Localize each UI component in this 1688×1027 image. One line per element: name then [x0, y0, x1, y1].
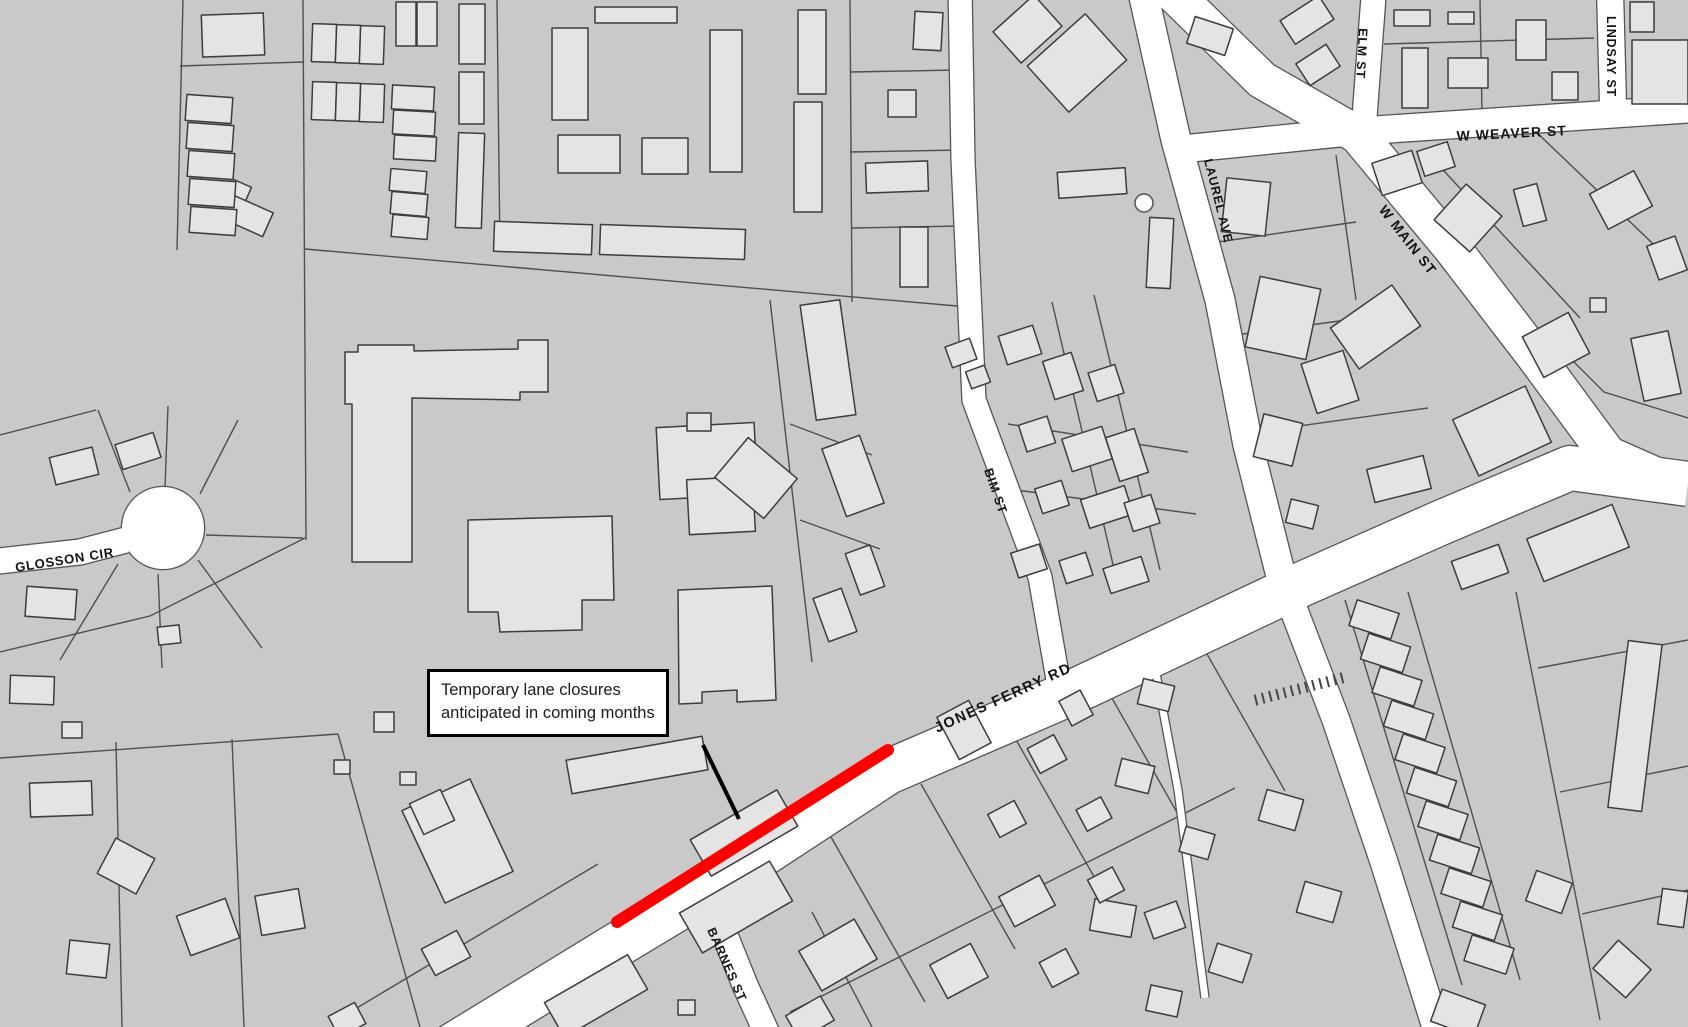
building — [1513, 184, 1546, 227]
townhouse-unit — [1441, 868, 1491, 907]
hatch-tick — [1262, 693, 1265, 704]
building — [800, 300, 856, 420]
building-large-notched — [468, 516, 614, 632]
building — [374, 712, 394, 732]
building — [1451, 544, 1508, 589]
building — [66, 940, 109, 978]
building — [900, 227, 928, 287]
map-canvas: GLOSSON CIR JONES FERRY RD BARNES ST BIM… — [0, 0, 1688, 1027]
hatch-tick — [1298, 684, 1301, 695]
building — [1035, 480, 1070, 513]
map-stage: GLOSSON CIR JONES FERRY RD BARNES ST BIM… — [0, 0, 1688, 1027]
building — [1296, 881, 1341, 922]
callout-leader-line — [703, 745, 739, 819]
townhouse-unit — [335, 83, 360, 122]
townhouse-unit — [1464, 935, 1514, 974]
building — [494, 221, 593, 254]
parcel-line — [1384, 38, 1594, 44]
building-large-notched — [678, 586, 776, 704]
parcel-line — [1480, 0, 1482, 112]
townhouse-unit — [417, 2, 437, 46]
building — [255, 888, 305, 935]
townhouse-unit — [393, 135, 436, 161]
building — [25, 586, 77, 619]
townhouse-unit — [1349, 600, 1399, 639]
building — [455, 133, 484, 229]
building — [1402, 48, 1428, 108]
building — [642, 138, 688, 174]
building — [566, 736, 708, 793]
townhouse-unit — [396, 2, 416, 46]
building — [595, 7, 677, 23]
annotation-line-2: anticipated in coming months — [441, 702, 655, 725]
building — [1208, 943, 1252, 983]
building — [1137, 679, 1174, 712]
building — [1590, 171, 1653, 230]
building — [459, 4, 485, 64]
building — [678, 1000, 695, 1015]
building — [1027, 735, 1067, 774]
building — [822, 435, 884, 516]
parcel-line — [800, 520, 880, 549]
building — [1258, 789, 1303, 830]
townhouse-unit — [188, 178, 236, 207]
building — [1286, 499, 1319, 529]
building — [1394, 10, 1430, 26]
building — [49, 447, 98, 485]
annotation-line-1: Temporary lane closures — [441, 679, 655, 702]
building — [998, 325, 1042, 365]
building — [1608, 641, 1662, 812]
building — [1632, 40, 1688, 104]
townhouse-unit — [1360, 633, 1410, 672]
townhouse-unit — [1418, 801, 1468, 840]
parcel-line — [1538, 640, 1688, 668]
townhouse-unit — [1383, 700, 1433, 739]
townhouse-unit — [185, 94, 233, 123]
building — [1448, 58, 1488, 88]
townhouse-unit — [1429, 834, 1479, 873]
building — [794, 102, 822, 212]
hatch-tick — [1276, 689, 1279, 700]
building — [930, 943, 988, 998]
parcel-line — [232, 739, 244, 1027]
parcel-line — [200, 420, 238, 494]
building — [1088, 867, 1125, 903]
building — [1552, 72, 1578, 100]
building — [1658, 888, 1688, 927]
building — [988, 800, 1027, 837]
building — [1526, 870, 1573, 913]
building — [1296, 44, 1340, 85]
hatch-tick — [1283, 687, 1286, 698]
building — [10, 675, 55, 705]
building — [421, 930, 470, 975]
townhouse-unit — [311, 82, 336, 121]
building — [1144, 901, 1186, 939]
parcel-line — [303, 0, 306, 540]
townhouse-unit — [391, 85, 434, 111]
parcel-line — [206, 535, 303, 538]
building — [201, 13, 264, 57]
building — [845, 545, 884, 595]
small-circle-feature — [1135, 194, 1153, 212]
townhouse-unit — [1406, 767, 1456, 806]
townhouse-unit — [359, 84, 384, 123]
street-label-lindsay-st: LINDSAY ST — [1604, 16, 1618, 97]
building — [913, 11, 943, 50]
building — [687, 413, 711, 431]
townhouse-unit — [1372, 667, 1422, 706]
building — [1018, 416, 1055, 452]
townhouse-unit — [311, 24, 336, 63]
parcel-line — [497, 0, 500, 252]
building — [1593, 940, 1651, 998]
hatch-tick — [1269, 691, 1272, 702]
hatch-tick — [1255, 695, 1258, 706]
building — [1146, 217, 1174, 288]
parcel-line — [177, 0, 183, 250]
townhouse-unit — [390, 191, 428, 216]
building — [1043, 352, 1084, 399]
building — [1516, 20, 1546, 60]
parcel-line — [305, 249, 957, 306]
parcel-line — [850, 0, 852, 302]
building — [1590, 298, 1606, 312]
building — [888, 90, 916, 117]
parcel-line — [198, 560, 262, 648]
street-label-elm-st: ELM ST — [1353, 28, 1370, 79]
building — [1039, 949, 1079, 988]
building — [1090, 899, 1137, 938]
hatch-tick — [1290, 686, 1293, 697]
parcel-line — [850, 70, 958, 72]
townhouse-unit — [389, 168, 427, 193]
building — [552, 28, 588, 120]
building — [1367, 455, 1432, 502]
building — [1057, 168, 1127, 199]
townhouse-unit — [189, 206, 237, 235]
building — [1103, 556, 1149, 593]
building — [459, 72, 484, 124]
townhouse-unit — [392, 110, 435, 136]
building — [600, 224, 746, 259]
townhouse-unit — [359, 26, 384, 65]
parcel-line — [158, 574, 162, 668]
parcel-line — [165, 406, 168, 487]
building — [1280, 0, 1334, 44]
hatch-tick — [1341, 673, 1344, 684]
townhouse-unit — [391, 214, 429, 239]
building — [1106, 428, 1149, 481]
townhouse-unit — [187, 150, 235, 179]
parcel-line — [0, 734, 338, 758]
parcel-line — [1516, 592, 1600, 1020]
closure-annotation-callout: Temporary lane closures anticipated in c… — [427, 669, 669, 737]
building — [115, 432, 161, 469]
parcel-line — [0, 410, 96, 435]
building — [865, 161, 928, 193]
building — [176, 898, 239, 955]
road-w-weaver-st — [1172, 109, 1688, 150]
parcel-line — [850, 150, 961, 152]
building — [798, 10, 826, 94]
building — [1417, 142, 1455, 177]
townhouse-unit — [1395, 734, 1445, 773]
townhouse-unit — [186, 122, 234, 151]
parcel-line — [1336, 155, 1356, 300]
building — [799, 919, 877, 991]
building — [1059, 552, 1093, 583]
building — [97, 838, 155, 894]
building — [334, 760, 350, 774]
glosson-cir-bulb — [122, 487, 204, 569]
building — [786, 996, 835, 1027]
building — [400, 772, 416, 785]
townhouse-unit — [1452, 901, 1502, 940]
townhouse-unit — [335, 25, 360, 64]
building — [29, 781, 92, 817]
building — [157, 625, 181, 645]
building — [1253, 414, 1302, 466]
building — [1301, 350, 1359, 413]
parcel-line — [180, 62, 303, 66]
building — [1631, 331, 1681, 402]
building — [710, 30, 742, 172]
building — [1076, 797, 1112, 831]
building — [1245, 276, 1321, 359]
building — [62, 722, 82, 738]
building — [1146, 985, 1183, 1017]
building — [1647, 236, 1688, 280]
building — [558, 135, 620, 173]
building — [1527, 504, 1630, 581]
building — [1448, 12, 1474, 24]
building — [1630, 2, 1654, 32]
building — [813, 588, 857, 641]
building — [402, 779, 513, 903]
